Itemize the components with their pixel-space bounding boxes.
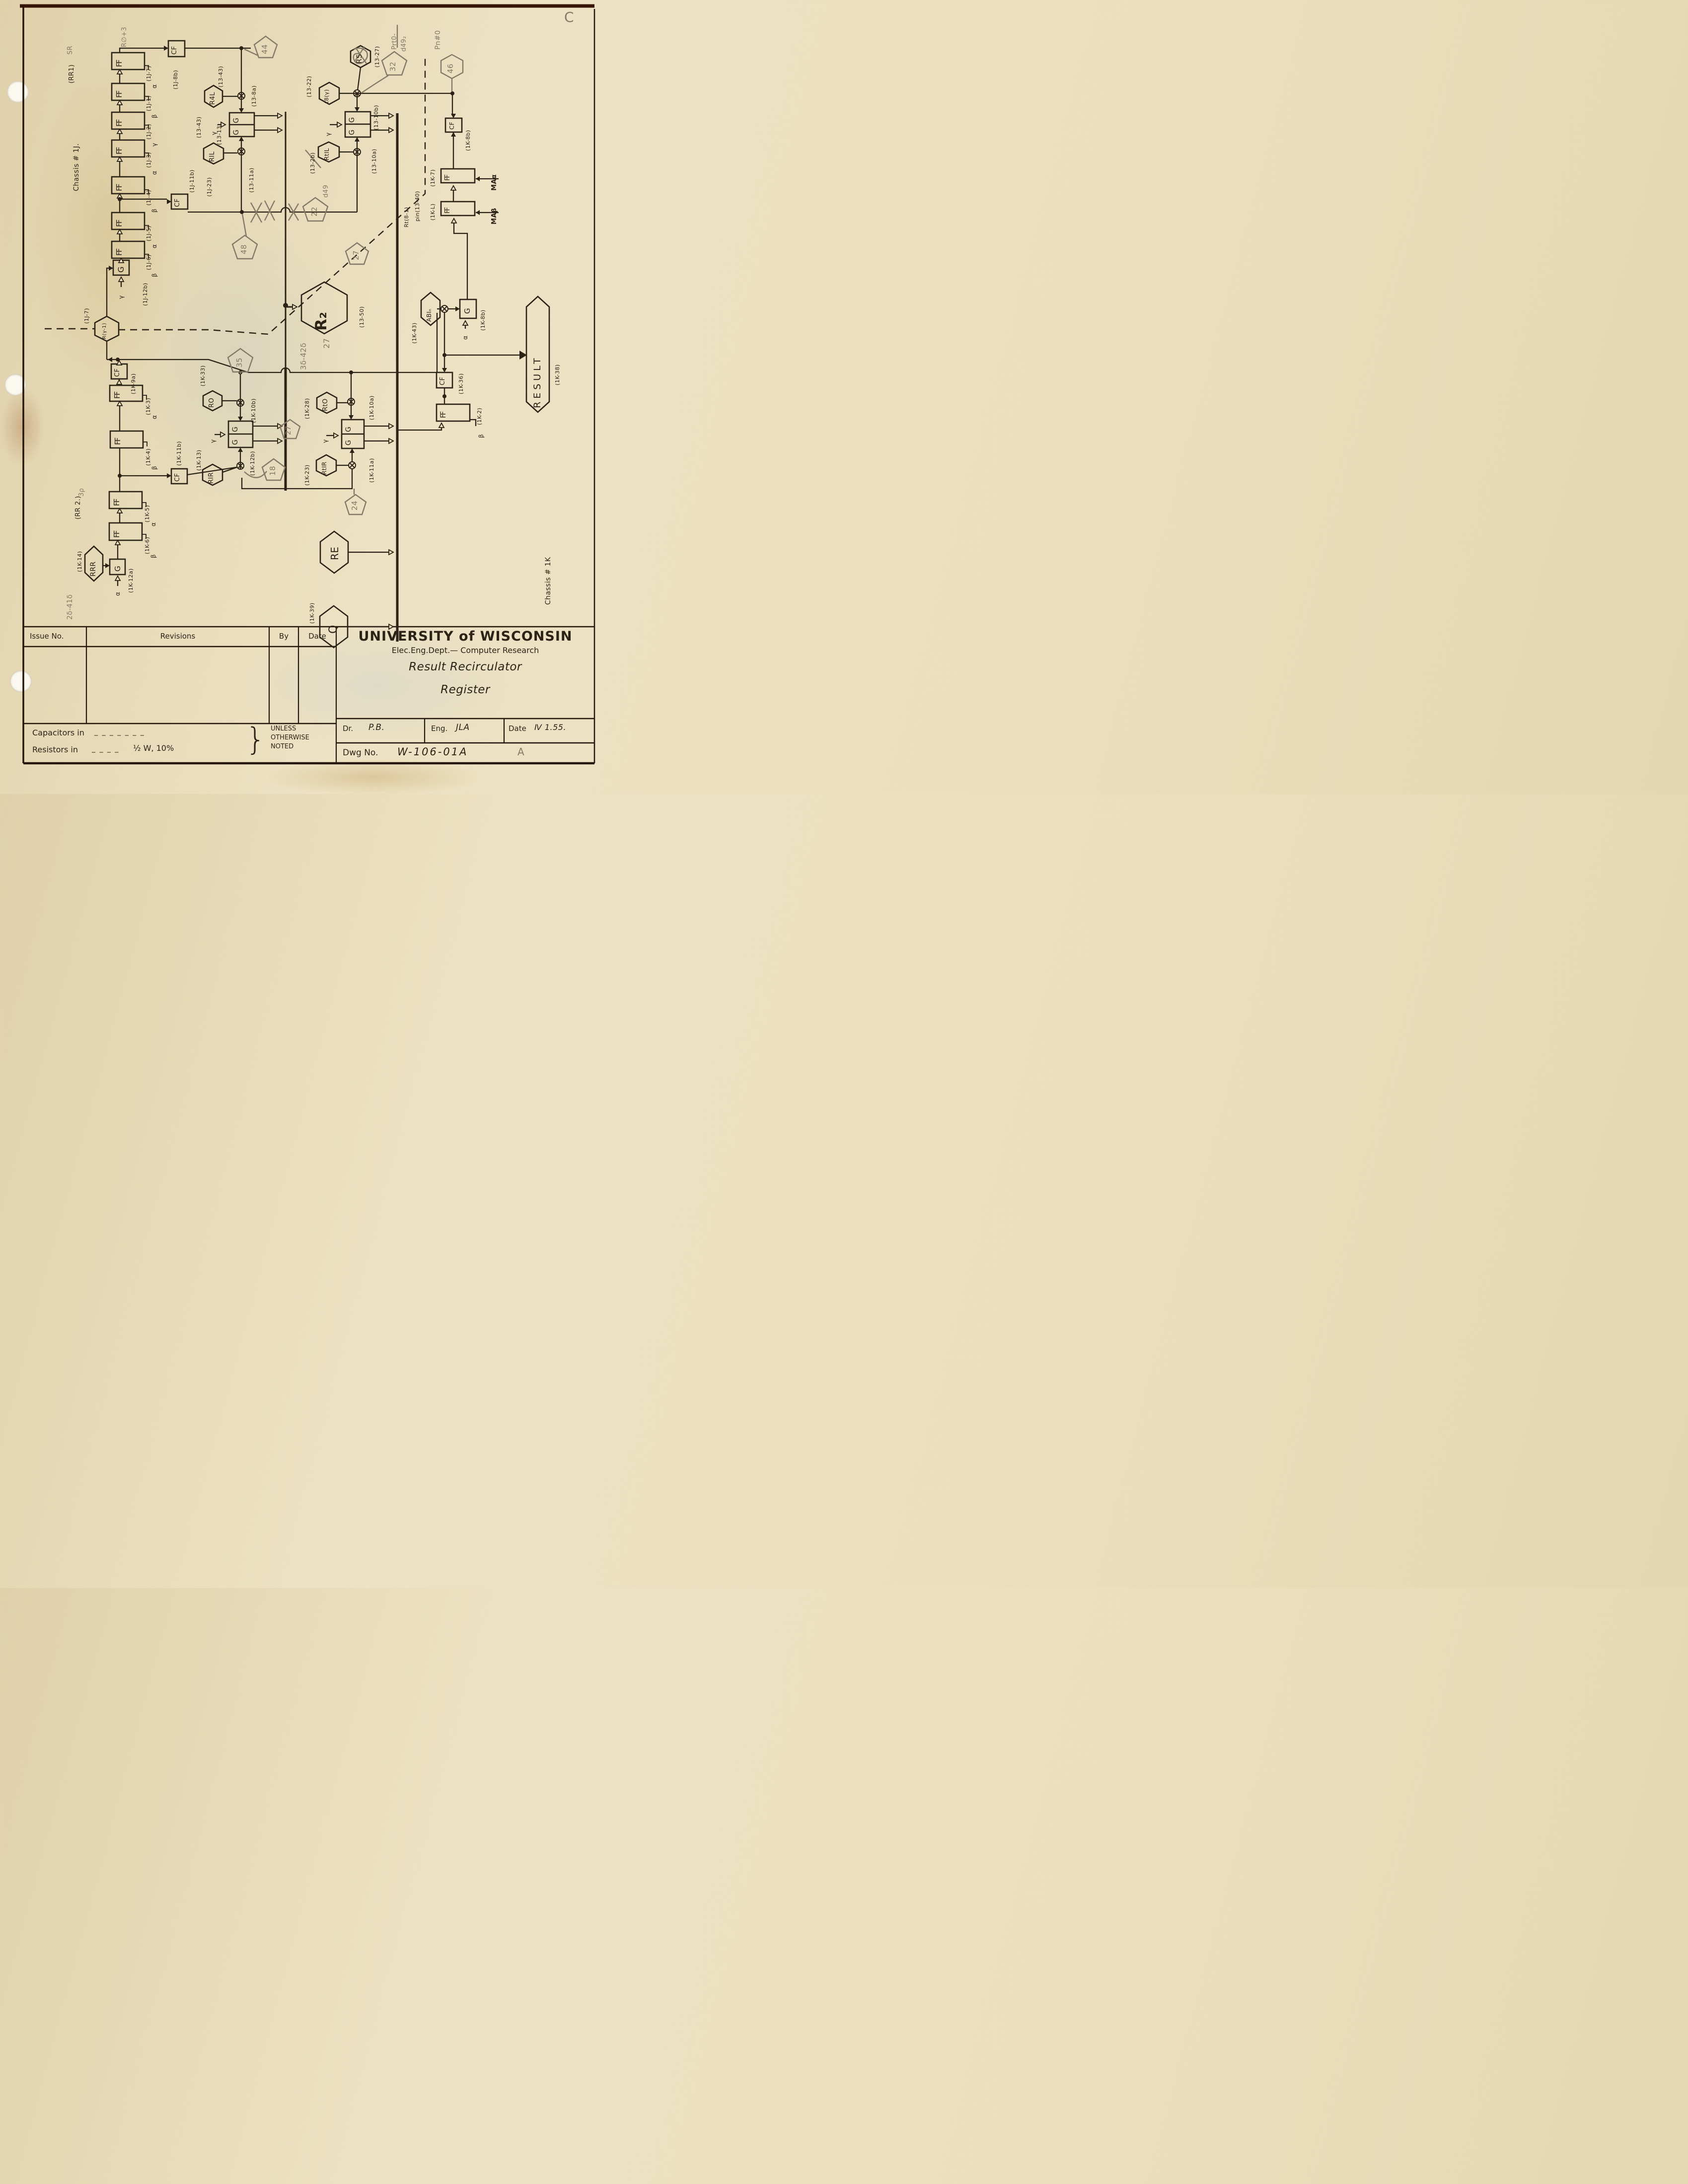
block-glyph-ff: FF bbox=[115, 185, 124, 191]
tap-greek: α bbox=[150, 522, 157, 526]
pin-label: (1K-7) bbox=[430, 169, 436, 187]
pencil-number-35: 35 bbox=[235, 358, 244, 367]
pin-label: (13-43) bbox=[218, 66, 224, 87]
tap-greek: β bbox=[151, 466, 158, 470]
pencil-note-sr: SR bbox=[67, 46, 74, 55]
tap-greek: α bbox=[151, 244, 158, 248]
block-glyph-ff: FF bbox=[113, 438, 122, 445]
flag-text-rs: RS bbox=[356, 54, 364, 64]
note-resistors-value: ½ W, 10% bbox=[133, 743, 174, 753]
pencil-number-44: 44 bbox=[260, 44, 269, 54]
col-header-date: Date bbox=[298, 632, 336, 641]
pin-label: (13-50) bbox=[359, 306, 365, 328]
pin-label: (1J-7) bbox=[83, 308, 90, 324]
drafter-value: P.B. bbox=[368, 723, 384, 732]
pin-label: (1K-6) bbox=[144, 537, 150, 554]
gate-greek: γ bbox=[211, 131, 218, 135]
block-glyph-g: G bbox=[116, 266, 126, 273]
tap-greek: α bbox=[151, 171, 158, 175]
pin-label: (1K-2) bbox=[476, 408, 483, 425]
pin-label: (13-10b) bbox=[373, 105, 379, 130]
block-glyph-g: G bbox=[231, 439, 239, 445]
dwg-no-label: Dwg No. bbox=[343, 748, 378, 758]
pin-label: (1J-5) bbox=[146, 225, 152, 241]
flag-text-rtir: RtIR bbox=[321, 461, 328, 475]
pin-label: (1K-9a) bbox=[130, 373, 137, 394]
drawing-title-line2: Register bbox=[336, 683, 594, 696]
pin-label: (1J-3) bbox=[146, 152, 152, 168]
pin-label: (13-11a) bbox=[248, 168, 255, 193]
note-resistors-dashes: _ _ _ _ bbox=[92, 745, 119, 753]
note-unless: UNLESS bbox=[271, 725, 296, 732]
pin-label: (1K-38) bbox=[554, 364, 561, 385]
pin-label: (1K-23) bbox=[304, 465, 310, 486]
pencil-number-18: 18 bbox=[268, 466, 277, 476]
tap-greek: β bbox=[151, 114, 158, 118]
pencil-note-prt0: Prt0- bbox=[391, 33, 398, 50]
flag-label-rr2: (RR 2.) bbox=[74, 496, 82, 519]
wire-h1 bbox=[107, 309, 441, 372]
pencil-number-32: 32 bbox=[388, 62, 397, 72]
block-glyph-ff: FF bbox=[112, 531, 121, 538]
note-otherwise: OTHERWISE bbox=[271, 734, 309, 741]
block-glyph-ff: FF bbox=[115, 91, 124, 98]
tap-greek: β bbox=[150, 554, 157, 558]
chassis-label-1j: Chassis # 1J. bbox=[73, 144, 80, 191]
pin-label: (13-27) bbox=[374, 46, 380, 68]
filled-arrows bbox=[105, 46, 527, 568]
wire-re-q bbox=[348, 552, 393, 627]
pencil-mark-c: C bbox=[564, 9, 574, 25]
tap-greek: α bbox=[151, 415, 158, 419]
dwg-no-value: W-106-01A bbox=[397, 746, 468, 758]
pin-label: (1K-3) bbox=[145, 398, 151, 415]
note-capacitors-dashes: _ _ _ _ _ _ _ bbox=[94, 728, 145, 736]
engineer-label: Eng. bbox=[431, 724, 447, 733]
pin-label: (1K-10a) bbox=[368, 395, 375, 420]
pin-label: (1J-8b) bbox=[172, 70, 179, 89]
pin-label: (1J-4) bbox=[146, 190, 152, 206]
pin-label: (1J-7) bbox=[146, 66, 152, 81]
pin-label: (1K-11b) bbox=[176, 441, 182, 466]
pencil-note-3d42d: 3δ-42δ bbox=[299, 343, 308, 370]
signal-label-maa: MAα bbox=[491, 174, 498, 191]
pin-label-struck: (13-2b) bbox=[309, 152, 316, 174]
note-resistors: Resistors in bbox=[32, 745, 78, 754]
pin-label: (1K-13) bbox=[196, 450, 202, 471]
block-glyph-g: G bbox=[345, 427, 353, 432]
dept-subtitle: Elec.Eng.Dept.— Computer Research bbox=[336, 646, 594, 655]
wire-gg-outputs-top bbox=[254, 116, 393, 130]
block-glyph-ff: FF bbox=[115, 120, 124, 127]
pencil-number-22: 22 bbox=[310, 207, 319, 217]
tap-greek: γ bbox=[151, 143, 158, 146]
junction-crossover-symbols bbox=[237, 90, 448, 469]
block-glyph-g: G bbox=[348, 130, 356, 135]
pin-label: (1K-28) bbox=[304, 398, 310, 419]
date-value: Ⅳ 1.55. bbox=[534, 723, 566, 732]
block-glyph-ff: FF bbox=[444, 208, 451, 214]
tap-greek: β bbox=[151, 273, 158, 277]
flag-text-rrr: RRR bbox=[89, 562, 97, 577]
flag-text-abin: ABIₙ bbox=[426, 309, 433, 322]
block-glyph-g: G bbox=[463, 308, 472, 314]
flag-text-ril: RIL bbox=[209, 151, 216, 162]
pin-label: (1K-L) bbox=[430, 204, 436, 220]
wire-cf1j8b bbox=[120, 48, 251, 109]
pencil-number-46: 46 bbox=[446, 64, 455, 73]
pencil-number-48: 48 bbox=[239, 244, 248, 254]
pin-label: (1K-11a) bbox=[368, 458, 375, 483]
drafter-label: Dr. bbox=[343, 724, 353, 733]
pencil-note-3p: 3ρ bbox=[78, 488, 85, 497]
block-glyph-ff: FF bbox=[112, 500, 121, 506]
pin-label: (1K-33) bbox=[200, 365, 206, 386]
block-glyph-cf: CF bbox=[174, 473, 181, 482]
note-capacitors: Capacitors in bbox=[32, 728, 84, 737]
bus-label-rt81: Rt(8-1) bbox=[403, 207, 410, 227]
wire-v1 bbox=[286, 112, 297, 367]
pin-label: (1K-43) bbox=[411, 323, 418, 344]
block-glyph-g: G bbox=[348, 117, 356, 123]
block-glyph-ff: FF bbox=[115, 220, 124, 227]
gate-greek: γ bbox=[325, 132, 332, 136]
pencil-mark-a: A bbox=[517, 746, 524, 758]
block-glyph-cf: CF bbox=[448, 122, 455, 130]
col-header-issue: Issue No. bbox=[30, 632, 64, 641]
chassis-divider-dashed-line bbox=[45, 59, 425, 334]
flag-text-result: RESULT bbox=[532, 355, 543, 408]
drawing-title-line1: Result Recirculator bbox=[336, 660, 594, 673]
flag-text-rir: RIR bbox=[208, 472, 215, 484]
block-glyph-cf: CF bbox=[439, 377, 446, 385]
gate-greek: γ bbox=[118, 295, 125, 299]
block-glyph-cf: CF bbox=[174, 199, 181, 207]
block-glyph-ff: FF bbox=[113, 392, 122, 399]
ink-wires bbox=[103, 48, 519, 642]
pencil-connector-strokes bbox=[240, 25, 452, 495]
block-glyph-ff: FF bbox=[115, 148, 124, 154]
block-glyph-cf: CF bbox=[171, 46, 178, 55]
pin-label: (1K-12a) bbox=[128, 568, 134, 593]
pencil-number-27a: 27 bbox=[352, 250, 361, 260]
pencil-number-24: 24 bbox=[350, 501, 359, 510]
pin-label: (13-43) bbox=[196, 117, 202, 138]
pencil-note-pn0: Pn#0 bbox=[434, 30, 442, 50]
pin-label: (1K-36) bbox=[458, 373, 464, 394]
gate-greek: γ bbox=[322, 439, 329, 443]
date-label: Date bbox=[509, 724, 526, 733]
pencil-note-d492: d49₂ bbox=[400, 36, 408, 52]
tap-greek: β bbox=[478, 434, 485, 438]
flag-text-t8g: t8(γ) bbox=[323, 89, 330, 103]
flag-text-r4l: R4L bbox=[209, 92, 217, 105]
flag-text-ro: RO bbox=[208, 398, 216, 408]
block-glyph-g: G bbox=[232, 130, 240, 135]
gate-greek: α bbox=[114, 592, 121, 596]
bus-label-pin1340: pin(13-40) bbox=[414, 191, 421, 221]
pin-label: (1K-4) bbox=[145, 448, 151, 466]
block-glyph-ff: FF bbox=[115, 249, 124, 256]
flag-text-re: RE bbox=[329, 547, 341, 560]
pin-label: (1K-8b) bbox=[480, 310, 486, 331]
flag-text-rg1: R(γ-1) bbox=[102, 323, 107, 339]
pin-label: (1K-39) bbox=[309, 603, 315, 624]
note-brace: } bbox=[246, 721, 265, 757]
pin-label: (1J-2) bbox=[146, 124, 152, 140]
pencil-number-27b: 27 bbox=[285, 426, 293, 435]
gate-greek: γ bbox=[210, 439, 217, 443]
col-header-revisions: Revisions bbox=[86, 632, 269, 641]
block-glyph-ff: FF bbox=[444, 175, 451, 181]
block-glyph-ff: FF bbox=[440, 412, 447, 418]
pencil-note-d49: d49 bbox=[322, 185, 330, 198]
pin-label: (13-22) bbox=[306, 76, 312, 97]
pin-label: (1J-11b) bbox=[189, 169, 195, 193]
tap-greek: α bbox=[151, 84, 158, 88]
block-glyph-g: G bbox=[345, 440, 353, 445]
gate-greek: α bbox=[462, 336, 469, 340]
col-header-by: By bbox=[269, 632, 298, 641]
pin-label: (1J-23) bbox=[206, 177, 213, 197]
pin-label: (1K-5) bbox=[144, 505, 150, 522]
tap-greek: β bbox=[151, 209, 158, 213]
engineer-value: JLA bbox=[456, 723, 470, 732]
pencil-note-2d41d: 2δ-41δ bbox=[66, 594, 74, 620]
schematic-linework bbox=[0, 0, 614, 794]
block-glyph-g: G bbox=[231, 427, 239, 432]
pencil-number-in-r2: 27 bbox=[322, 338, 331, 349]
pencil-note-rd3: R∅+3 bbox=[121, 27, 128, 47]
pin-label: (13-8a) bbox=[251, 85, 257, 107]
scanned-schematic-page: { "titleblock": { "org": "UNIVERSITY of … bbox=[0, 0, 614, 794]
pin-label: (1K-12b) bbox=[249, 451, 256, 476]
block-glyph-cf: CF bbox=[114, 368, 121, 377]
block-glyph-g: G bbox=[113, 566, 122, 572]
signal-label-mab: MAβ bbox=[491, 208, 498, 224]
pin-label: (1J-1) bbox=[146, 95, 152, 111]
block-glyph-ff: FF bbox=[115, 61, 124, 67]
flag-text-r2: R₂ bbox=[312, 312, 330, 331]
block-glyph-g: G bbox=[232, 118, 240, 123]
flag-text-rto: RtO bbox=[322, 398, 329, 411]
pin-label: (1J-6) bbox=[146, 254, 152, 270]
note-noted: NOTED bbox=[271, 743, 294, 750]
pin-label: (13-10a) bbox=[371, 149, 377, 174]
chassis-label-1k: Chassis # 1K bbox=[544, 557, 552, 605]
flag-text-rtil: RtIL bbox=[323, 148, 330, 160]
pin-label: (1K-14) bbox=[76, 551, 83, 572]
org-title: UNIVERSITY of WISCONSIN bbox=[336, 629, 594, 644]
flag-label-rr1: (RR1) bbox=[68, 65, 75, 83]
pin-label: (1K-8b) bbox=[465, 130, 471, 151]
pin-label: (1J-12b) bbox=[142, 283, 148, 306]
pin-label: (1K-10b) bbox=[250, 398, 257, 423]
